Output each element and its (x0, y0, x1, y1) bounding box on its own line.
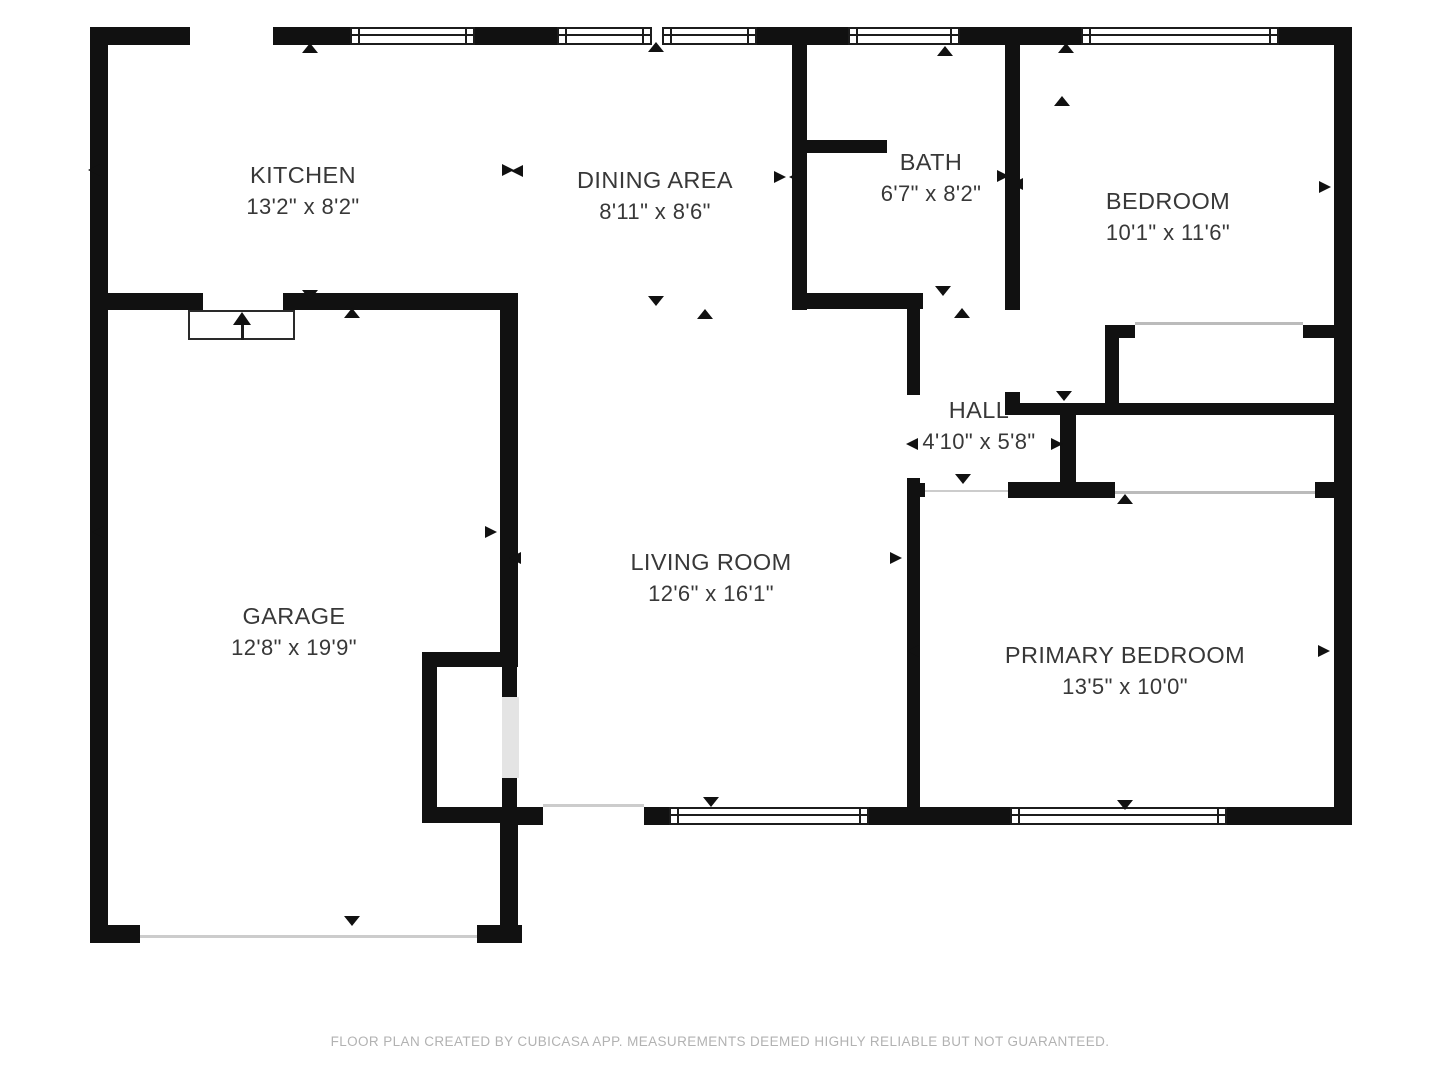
room-label-dining-area: DINING AREA8'11" x 8'6" (577, 165, 733, 227)
floor-plan: KITCHEN13'2" x 8'2"DINING AREA8'11" x 8'… (0, 0, 1440, 1080)
measure-arrow-right-icon (890, 552, 902, 564)
window-frame-cap (1269, 29, 1271, 43)
window-frame-cap (565, 29, 567, 43)
window-frame-cap (670, 29, 672, 43)
window (669, 807, 869, 825)
wall (1105, 325, 1135, 338)
window (557, 27, 652, 45)
wall (500, 823, 518, 943)
room-name: BEDROOM (1106, 186, 1230, 217)
measure-arrow-up-icon (937, 46, 953, 56)
wall (422, 652, 437, 823)
room-dimensions: 10'1" x 11'6" (1106, 217, 1230, 248)
wall (1334, 27, 1352, 825)
measure-arrow-right-icon (1319, 181, 1331, 193)
steps-up-arrow-head (233, 312, 251, 325)
room-name: KITCHEN (246, 160, 359, 191)
window-frame-cap (465, 29, 467, 43)
measure-arrow-down-icon (302, 290, 318, 300)
room-label-living-room: LIVING ROOM12'6" x 16'1" (630, 547, 791, 609)
patio-opening-threshold (543, 804, 644, 807)
wall (502, 667, 517, 699)
measure-arrow-left-icon (906, 438, 918, 450)
room-label-bedroom: BEDROOM10'1" x 11'6" (1106, 186, 1230, 248)
wall (792, 293, 923, 309)
garage-door-line (140, 935, 477, 938)
room-label-garage: GARAGE12'8" x 19'9" (231, 601, 357, 663)
wall (1105, 338, 1119, 403)
measure-arrow-right-icon (502, 164, 514, 176)
wall (90, 925, 140, 943)
wall (1315, 482, 1334, 498)
measure-arrow-up-icon (648, 42, 664, 52)
measure-arrow-left-icon (789, 171, 801, 183)
wall (1008, 482, 1115, 498)
wall (90, 293, 203, 310)
measure-arrow-left-icon (509, 552, 521, 564)
utility-closet-door-leaf (502, 697, 519, 778)
hall-opening-threshold (925, 490, 1008, 492)
room-name: DINING AREA (577, 165, 733, 196)
measure-arrow-up-icon (1054, 96, 1070, 106)
window-frame-cap (642, 29, 644, 43)
room-dimensions: 6'7" x 8'2" (881, 178, 982, 209)
room-dimensions: 13'5" x 10'0" (1005, 671, 1245, 702)
wall (907, 483, 925, 497)
measure-arrow-left-icon (92, 526, 104, 538)
room-name: GARAGE (231, 601, 357, 632)
window-frame-cap (1217, 809, 1219, 823)
room-dimensions: 12'8" x 19'9" (231, 632, 357, 663)
room-dimensions: 12'6" x 16'1" (630, 578, 791, 609)
measure-arrow-left-icon (1011, 178, 1023, 190)
measure-arrow-up-icon (302, 43, 318, 53)
wall (422, 807, 543, 823)
measure-arrow-up-icon (697, 309, 713, 319)
measure-arrow-right-icon (774, 171, 786, 183)
room-label-bath: BATH6'7" x 8'2" (881, 147, 982, 209)
measure-arrow-down-icon (648, 296, 664, 306)
disclaimer-text: FLOOR PLAN CREATED BY CUBICASA APP. MEAS… (0, 1034, 1440, 1049)
window-frame-cap (859, 809, 861, 823)
measure-arrow-right-icon (1318, 645, 1330, 657)
room-dimensions: 4'10" x 5'8" (922, 426, 1035, 457)
window-frame-cap (747, 29, 749, 43)
floor-plan-canvas: KITCHEN13'2" x 8'2"DINING AREA8'11" x 8'… (0, 0, 1440, 1080)
room-label-hall: HALL4'10" x 5'8" (922, 395, 1035, 457)
room-name: HALL (922, 395, 1035, 426)
measure-arrow-down-icon (1056, 391, 1072, 401)
window-frame-cap (1018, 809, 1020, 823)
room-dimensions: 13'2" x 8'2" (246, 191, 359, 222)
wall (1303, 325, 1334, 338)
window (662, 27, 757, 45)
measure-arrow-right-icon (1051, 438, 1063, 450)
window-frame-cap (677, 809, 679, 823)
measure-arrow-left-icon (907, 645, 919, 657)
measure-arrow-down-icon (935, 286, 951, 296)
wall (907, 308, 920, 395)
measure-arrow-up-icon (1117, 494, 1133, 504)
wall (1227, 807, 1352, 825)
wall (502, 778, 517, 807)
measure-arrow-down-icon (344, 916, 360, 926)
window (1081, 27, 1279, 45)
measure-arrow-down-icon (703, 797, 719, 807)
wall (1005, 27, 1020, 310)
measure-arrow-right-icon (485, 526, 497, 538)
wall (807, 140, 887, 153)
measure-arrow-up-icon (954, 308, 970, 318)
room-name: BATH (881, 147, 982, 178)
wall (500, 310, 518, 667)
wall (475, 27, 557, 45)
wall (1010, 403, 1352, 415)
window-frame-cap (950, 29, 952, 43)
measure-arrow-left-icon (88, 164, 100, 176)
measure-arrow-right-icon (997, 170, 1009, 182)
room-label-primary-bedroom: PRIMARY BEDROOM13'5" x 10'0" (1005, 640, 1245, 702)
wall (644, 807, 669, 825)
window (350, 27, 475, 45)
measure-arrow-down-icon (955, 474, 971, 484)
window-frame-cap (1089, 29, 1091, 43)
room-dimensions: 8'11" x 8'6" (577, 196, 733, 227)
room-name: PRIMARY BEDROOM (1005, 640, 1245, 671)
primary-closet-slider (1115, 491, 1315, 494)
wall (907, 807, 1010, 825)
measure-arrow-up-icon (1058, 43, 1074, 53)
measure-arrow-down-icon (1117, 800, 1133, 810)
window (848, 27, 960, 45)
room-label-kitchen: KITCHEN13'2" x 8'2" (246, 160, 359, 222)
room-name: LIVING ROOM (630, 547, 791, 578)
bedroom-closet-slider (1135, 322, 1303, 325)
wall (792, 27, 807, 310)
wall (283, 293, 518, 310)
window-frame-cap (358, 29, 360, 43)
window-frame-cap (856, 29, 858, 43)
measure-arrow-up-icon (344, 308, 360, 318)
